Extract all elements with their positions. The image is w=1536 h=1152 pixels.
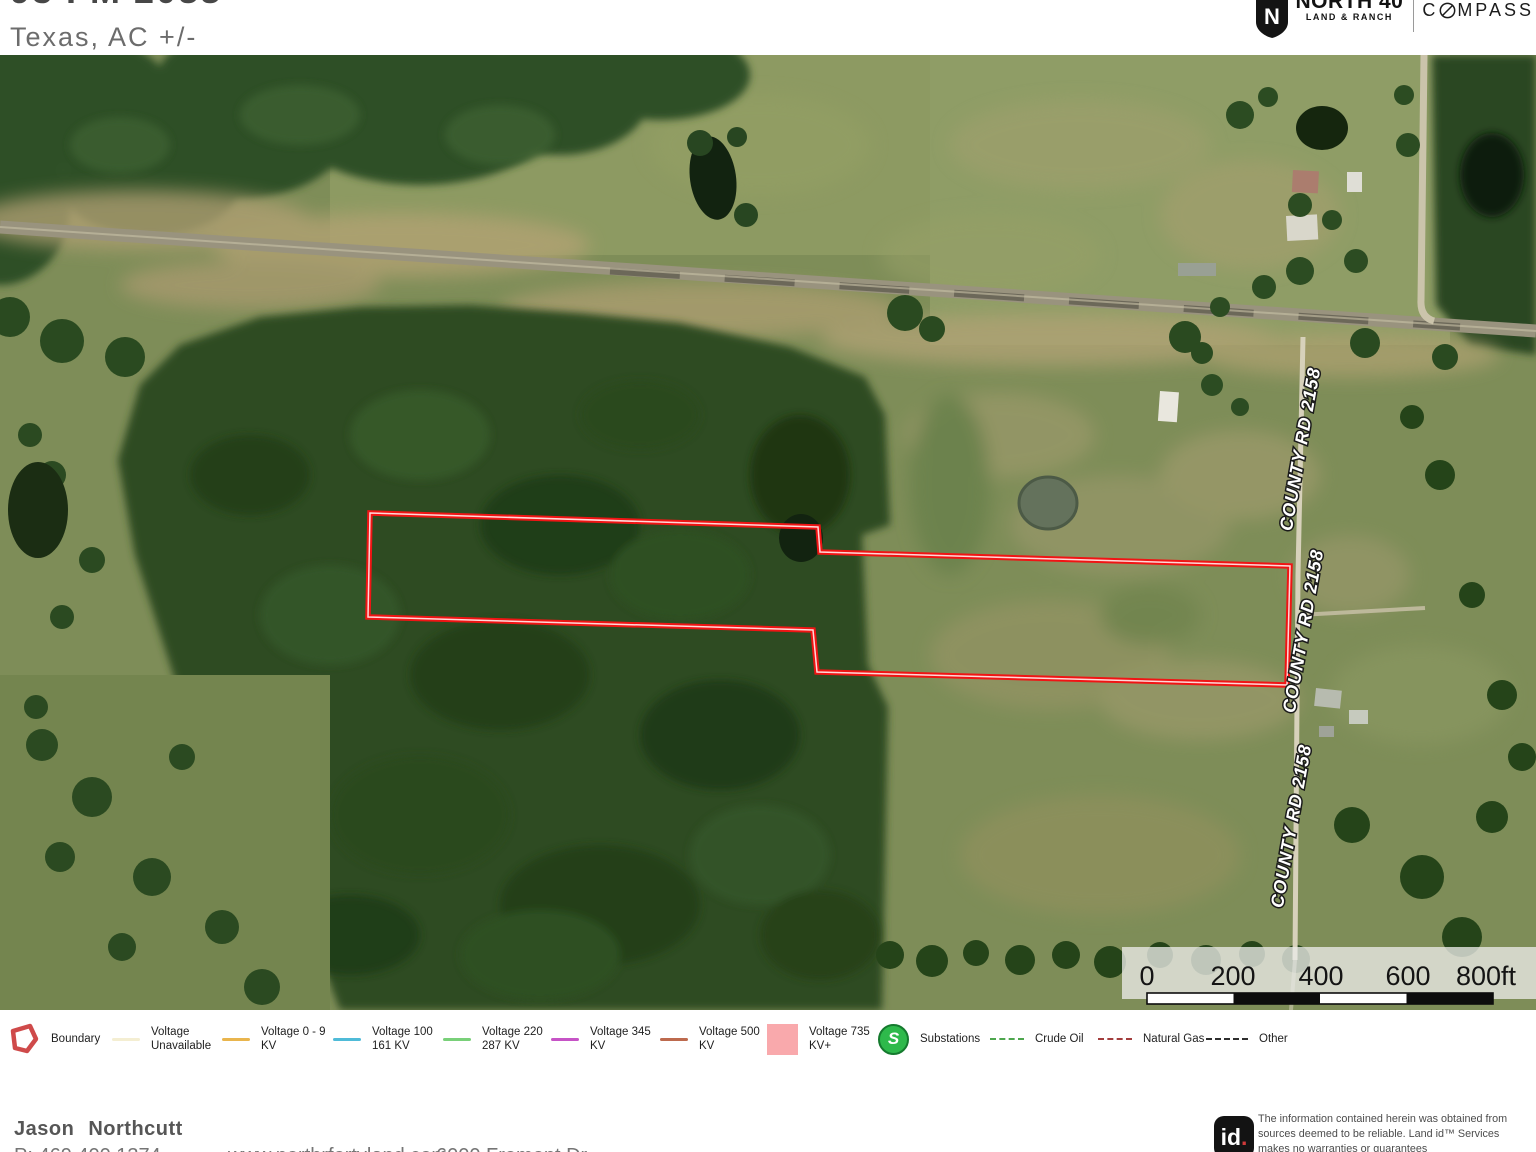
compass-wordmark: C MPASS — [1422, 0, 1536, 21]
voltage-100-161-line-icon — [333, 1038, 361, 1041]
agent-name: Jason Northcutt — [14, 1118, 183, 1141]
page-subtitle: Texas, AC +/- — [10, 22, 197, 53]
voltage-735-square-icon — [767, 1024, 798, 1055]
svg-text:200: 200 — [1210, 961, 1255, 991]
agent-website[interactable]: www.northrfortyland.com — [228, 1145, 448, 1152]
satellite-map-canvas: COUNTY RD 2158 COUNTY RD 2158 COUNTY RD … — [0, 55, 1536, 1010]
legend-item-voltage-0-9: Voltage 0 - 9 KV — [222, 1010, 341, 1068]
disclaimer-text: The information contained herein was obt… — [1258, 1112, 1534, 1152]
voltage-345-line-icon — [551, 1038, 579, 1041]
north40-shield-icon: N — [1254, 0, 1290, 38]
legend-item-substations: S Substations — [878, 1010, 980, 1068]
svg-text:400: 400 — [1298, 961, 1343, 991]
legend-item-voltage-unavailable: Voltage Unavailable — [112, 1010, 225, 1068]
other-dash-icon — [1206, 1038, 1248, 1040]
agent-phone: P: 469.400.1374 — [14, 1145, 161, 1152]
legend-item-other: Other — [1206, 1010, 1288, 1068]
voltage-unavailable-line-icon — [112, 1038, 140, 1041]
voltage-220-287-line-icon — [443, 1038, 471, 1041]
crude-oil-dash-icon — [990, 1038, 1024, 1040]
legend-item-voltage-100-161: Voltage 100 161 KV — [333, 1010, 452, 1068]
compass-o-icon — [1439, 2, 1456, 19]
legend-item-voltage-735: Voltage 735 KV+ — [767, 1010, 889, 1068]
legend-item-voltage-220-287: Voltage 220 287 KV — [443, 1010, 562, 1068]
svg-text:N: N — [1265, 4, 1281, 29]
voltage-0-9-line-icon — [222, 1038, 250, 1041]
land-id-logo: id. — [1214, 1116, 1254, 1152]
legend-item-voltage-345: Voltage 345 KV — [551, 1010, 656, 1068]
forest-top-far-right — [1432, 55, 1536, 355]
legend-item-natural-gas: Natural Gas — [1098, 1010, 1204, 1068]
natural-gas-dash-icon — [1098, 1038, 1132, 1040]
svg-text:800ft: 800ft — [1456, 961, 1517, 991]
brand-divider — [1413, 0, 1414, 32]
svg-text:0: 0 — [1139, 961, 1154, 991]
substation-icon: S — [878, 1024, 909, 1055]
voltage-500-line-icon — [660, 1038, 688, 1041]
map-legend: Boundary Voltage Unavailable Voltage 0 -… — [0, 1010, 1536, 1068]
brand-logos: N NORTH 40 LAND & RANCH C MPASS — [1254, 0, 1536, 54]
header: 93 FM 2088 Texas, AC +/- N NORTH 40 LAND… — [0, 0, 1536, 55]
listing-map-export: 93 FM 2088 Texas, AC +/- N NORTH 40 LAND… — [0, 0, 1536, 1152]
boundary-icon — [8, 1023, 40, 1055]
page-title: 93 FM 2088 — [10, 0, 222, 12]
north40-wordmark: NORTH 40 LAND & RANCH — [1295, 0, 1403, 23]
legend-item-boundary: Boundary — [8, 1010, 100, 1068]
scale-bar: 0 200 400 600 800ft — [1122, 947, 1536, 1004]
legend-item-voltage-500: Voltage 500 KV — [660, 1010, 765, 1068]
agent-address: 6000 Fremont Dr — [436, 1145, 587, 1152]
satellite-map: COUNTY RD 2158 COUNTY RD 2158 COUNTY RD … — [0, 55, 1536, 1010]
footer: Jason Northcutt P: 469.400.1374 www.nort… — [0, 1068, 1536, 1152]
svg-text:600: 600 — [1385, 961, 1430, 991]
legend-item-crude-oil: Crude Oil — [990, 1010, 1084, 1068]
